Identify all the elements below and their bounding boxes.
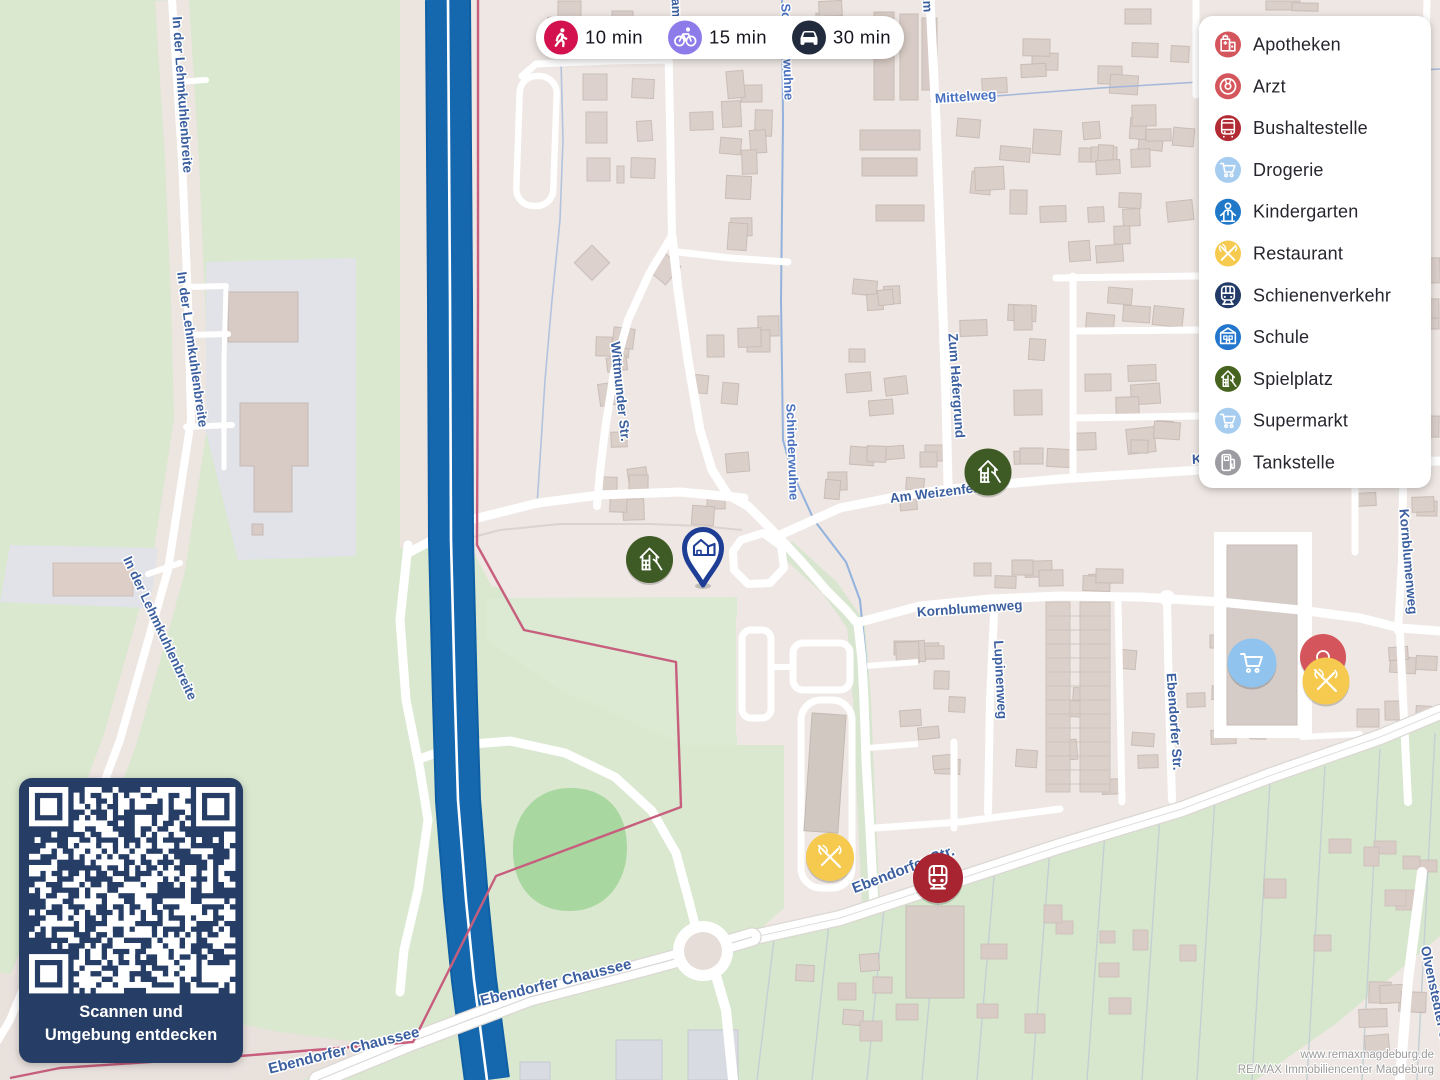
svg-text:Apotheken: Apotheken xyxy=(1253,35,1341,55)
svg-text:15 min: 15 min xyxy=(709,27,767,48)
svg-text:Drogerie: Drogerie xyxy=(1253,160,1324,180)
svg-text:Tankstelle: Tankstelle xyxy=(1253,453,1335,473)
svg-text:Arzt: Arzt xyxy=(1253,76,1286,96)
svg-text:Schule: Schule xyxy=(1253,327,1309,347)
svg-text:Supermarkt: Supermarkt xyxy=(1253,411,1348,431)
svg-text:Am: Am xyxy=(919,0,935,13)
svg-text:10 min: 10 min xyxy=(585,27,643,48)
svg-text:RE/MAX Immobiliencenter Magdeb: RE/MAX Immobiliencenter Magdeburg xyxy=(1238,1064,1434,1076)
svg-text:Spielplatz: Spielplatz xyxy=(1253,369,1333,389)
svg-text:30 min: 30 min xyxy=(833,27,891,48)
svg-text:Bushaltestelle: Bushaltestelle xyxy=(1253,118,1368,138)
svg-text:Scannen und: Scannen und xyxy=(79,1003,183,1021)
svg-text:am: am xyxy=(669,0,685,17)
svg-text:www.remaxmagdeburg.de: www.remaxmagdeburg.de xyxy=(1299,1049,1434,1061)
svg-text:Umgebung entdecken: Umgebung entdecken xyxy=(45,1026,217,1044)
svg-text:Schienenverkehr: Schienenverkehr xyxy=(1253,285,1391,305)
svg-text:Restaurant: Restaurant xyxy=(1253,244,1343,264)
svg-text:Kindergarten: Kindergarten xyxy=(1253,202,1358,222)
